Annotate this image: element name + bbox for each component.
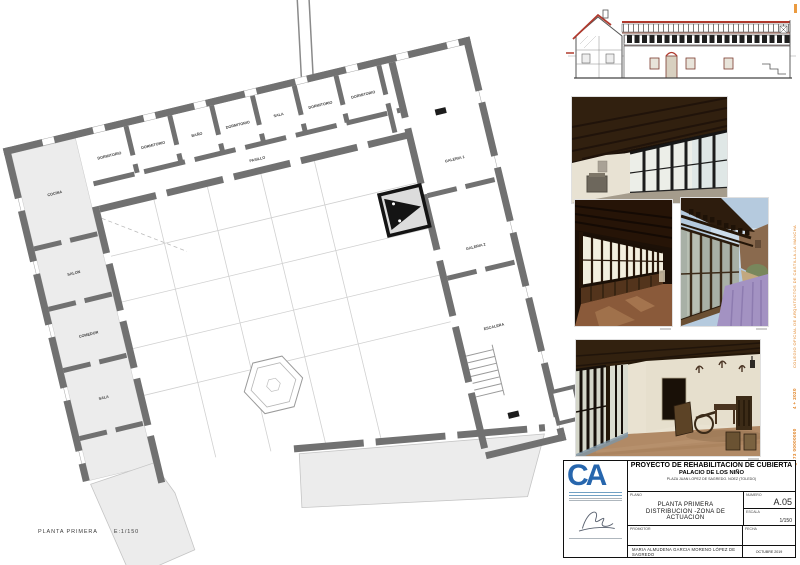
building-name: PALACIO DE LOS NIÑO [628, 470, 795, 476]
promotor-name: MARIA ALMUDENA GARCIA MORENO LÓPEZ DE SA… [628, 546, 742, 557]
actuation-zone-marker [379, 185, 430, 236]
room-label: DORMITORIO [351, 90, 376, 100]
visado-colegio: COLEGIO OFICIAL DE ARQUITECTOS DE CASTIL… [792, 225, 797, 368]
logo-footer-line [567, 538, 624, 539]
title-block-fields: PROYECTO DE REHABILITACION DE CUBIERTA P… [628, 461, 795, 557]
photo-gallery-interior-1 [572, 97, 727, 203]
photo-gallery-exterior [681, 198, 768, 326]
visado-stamp-text: Reg. 73 00000000 4 + 2020 COLEGIO OFICIA… [791, 163, 799, 481]
plano-label: PLANO [630, 493, 642, 497]
room-tag [435, 107, 447, 115]
gallery-door [666, 56, 677, 78]
numero-label: NUMERO [746, 493, 762, 497]
project-title: PROYECTO DE REHABILITACION DE CUBIERTA [628, 462, 795, 469]
ac-unit [587, 176, 607, 192]
promotor-row: PROMOTOR FECHA [628, 526, 795, 546]
room-label: BAÑO [191, 131, 203, 138]
stamp-corner-mark [794, 4, 797, 13]
upper-annex-walls [270, 0, 337, 77]
room-label: DORMITORIO [225, 120, 250, 130]
room-tag [507, 410, 519, 418]
photo-gallery-wide [576, 340, 760, 456]
escala-label: ESCALA [746, 510, 760, 514]
fecha-label: FECHA [745, 527, 757, 531]
plan-caption-name: PLANTA PRIMERA [38, 529, 98, 535]
room-label: ESCALERA [483, 322, 504, 331]
room-label: GALERIA 1 [445, 155, 466, 164]
room-label: SALA [273, 112, 284, 118]
date-value: OCTUBRE 2019 [742, 546, 795, 557]
photo-gallery-interior-2 [575, 200, 672, 326]
plan-caption: PLANTA PRIMERAE:1/150 [38, 529, 139, 535]
room-label: DORMITORIO [141, 140, 166, 150]
visado-expediente: 4 + 2020 [792, 388, 797, 409]
title-block: CA PROYECTO DE REHABILITACION DE CUBIERT… [563, 460, 796, 558]
architect-signature [570, 503, 622, 537]
architects-logo: CA [567, 462, 624, 491]
number-scale-cell: NUMERO A.05 ESCALA 1/150 [743, 492, 795, 525]
plan-name-cell: PLANTA PRIMERA DISTRIBUCION -ZONA DE ACT… [628, 492, 743, 525]
signature-row: MARIA ALMUDENA GARCIA MORENO LÓPEZ DE SA… [628, 546, 795, 557]
clerestory-window-band [624, 35, 790, 45]
room-label: DORMITORIO [97, 151, 122, 161]
drawing-sheet: COCINA DORMITORIO DORMITORIO BAÑO DORMIT… [0, 0, 800, 565]
room-label: PASILLO [249, 156, 266, 164]
room-label: GALERIA 2 [466, 243, 487, 252]
elevation-section-drawing [566, 4, 798, 94]
logo-detail-lines [567, 498, 624, 502]
project-address: PLAZA JUAN LOPEZ DE SAGREDO. NOEZ (TOLED… [628, 477, 795, 481]
title-row: PROYECTO DE REHABILITACION DE CUBIERTA P… [628, 461, 795, 492]
architect-logo-cell: CA [564, 461, 628, 557]
plan-row: PLANO PLANTA PRIMERA DISTRIBUCION -ZONA … [628, 492, 795, 526]
promotor-label: PROMOTOR [630, 527, 651, 531]
sheet-number: A.05 [773, 497, 792, 507]
plan-subname: DISTRIBUCION -ZONA DE ACTUACION [628, 509, 743, 521]
plan-caption-scale: E:1/150 [114, 529, 139, 535]
plan-name: PLANTA PRIMERA [628, 502, 743, 508]
scale-value: 1/150 [779, 518, 792, 524]
room-label: DORMITORIO [308, 100, 333, 110]
fecha-cell: FECHA [742, 526, 795, 545]
logo-caption-lines [567, 492, 624, 496]
floor-plan-drawing: COCINA DORMITORIO DORMITORIO BAÑO DORMIT… [0, 0, 585, 565]
section-house [573, 10, 622, 78]
